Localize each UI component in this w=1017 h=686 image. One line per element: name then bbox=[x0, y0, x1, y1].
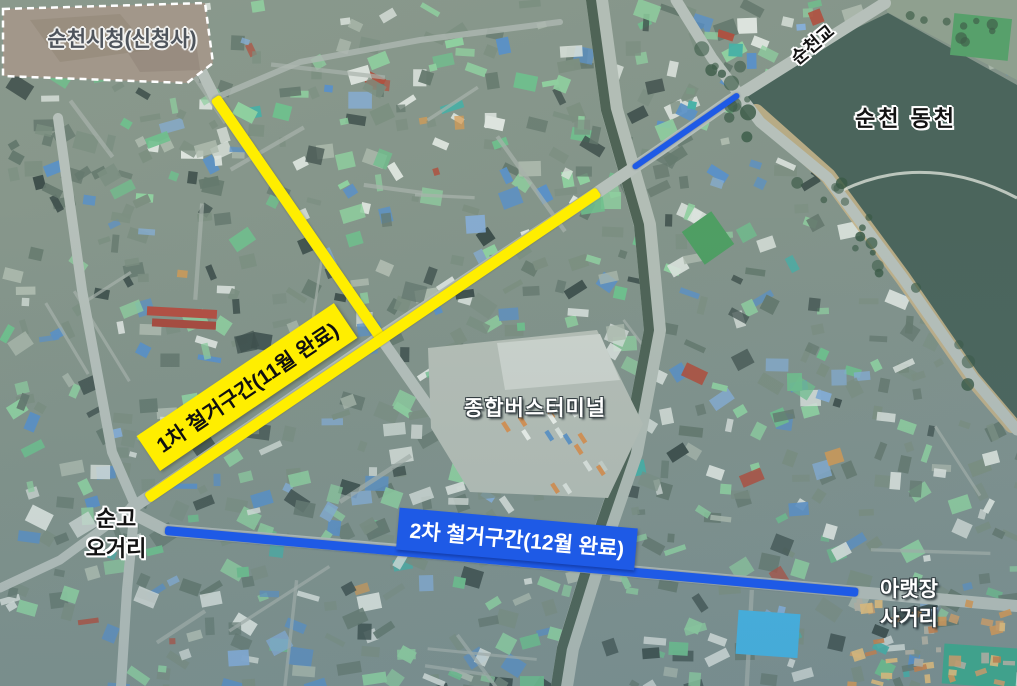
bus-terminal-building bbox=[497, 334, 620, 390]
blue-roof-building bbox=[736, 610, 801, 658]
sungo-label-line1: 순고 bbox=[86, 504, 147, 534]
sungo-label-line2: 오거리 bbox=[86, 534, 147, 564]
city-hall-label: 순천시청(신청사) bbox=[47, 23, 196, 53]
sungo-intersection-label: 순고 오거리 bbox=[86, 504, 147, 564]
araetjang-label-line2: 사거리 bbox=[880, 604, 938, 633]
araetjang-label-line1: 아랫장 bbox=[880, 575, 938, 604]
red-roof-building bbox=[147, 306, 217, 319]
araetjang-intersection-label: 아랫장 사거리 bbox=[880, 575, 938, 633]
river-label: 순천 동천 bbox=[855, 101, 957, 133]
aerial-map-screenshot: 1차 철거구간(11월 완료) 2차 철거구간(12월 완료) 순천시청(신청사… bbox=[0, 0, 1017, 686]
bus-terminal-label: 종합버스터미널 bbox=[464, 392, 606, 422]
